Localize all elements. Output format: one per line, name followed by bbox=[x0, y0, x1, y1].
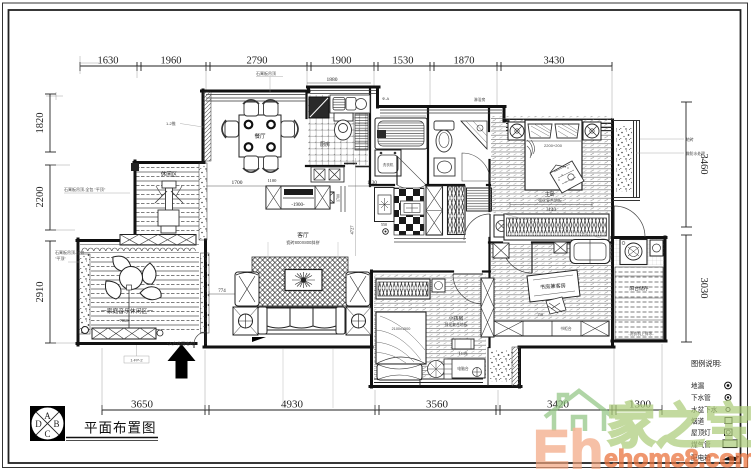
svg-text:休闲区: 休闲区 bbox=[161, 170, 178, 178]
svg-text:1100: 1100 bbox=[268, 178, 278, 183]
svg-text:洗衣机: 洗衣机 bbox=[383, 162, 394, 167]
svg-text:2200: 2200 bbox=[35, 187, 46, 208]
svg-text:3430: 3430 bbox=[544, 56, 565, 67]
svg-text:厨房: 厨房 bbox=[320, 141, 330, 148]
svg-text:4727: 4727 bbox=[350, 225, 355, 235]
svg-text:石膏板吊顶: 石膏板吊顶 bbox=[256, 70, 276, 76]
svg-text:1900: 1900 bbox=[331, 56, 352, 67]
svg-text:1130: 1130 bbox=[367, 181, 377, 186]
svg-text:3030: 3030 bbox=[698, 278, 709, 299]
svg-text:4930: 4930 bbox=[281, 399, 304, 411]
svg-text:瓷砖800X800斜拼: 瓷砖800X800斜拼 bbox=[286, 239, 320, 246]
svg-text:1-2推: 1-2推 bbox=[166, 120, 176, 126]
svg-text:地砖: 地砖 bbox=[686, 137, 694, 142]
svg-text:做防水处理: 做防水处理 bbox=[686, 151, 705, 156]
svg-text:主卧: 主卧 bbox=[544, 190, 556, 198]
svg-text:1119: 1119 bbox=[459, 351, 468, 356]
svg-text:餐厅: 餐厅 bbox=[254, 132, 266, 140]
svg-text:电脑台: 电脑台 bbox=[457, 366, 469, 371]
svg-text:书柜台: 书柜台 bbox=[560, 326, 572, 331]
svg-text:强化复合地板: 强化复合地板 bbox=[445, 322, 468, 327]
svg-text:B: B bbox=[53, 419, 59, 429]
svg-text:774: 774 bbox=[218, 289, 226, 294]
svg-text:图例说明:: 图例说明: bbox=[691, 359, 722, 368]
svg-text:-入户花园地砖-: -入户花园地砖- bbox=[167, 340, 196, 347]
svg-text:阳台储存: 阳台储存 bbox=[629, 285, 648, 292]
svg-text:1870: 1870 bbox=[454, 56, 475, 67]
svg-text:"平顶": "平顶" bbox=[55, 256, 66, 261]
svg-text:3140: 3140 bbox=[546, 208, 557, 213]
svg-text:地漏: 地漏 bbox=[691, 381, 705, 390]
svg-text:550: 550 bbox=[381, 222, 387, 227]
svg-text:小孩房: 小孩房 bbox=[448, 315, 463, 322]
svg-text:2200+200: 2200+200 bbox=[544, 143, 563, 148]
svg-text:ehome8.com: ehome8.com bbox=[604, 445, 751, 470]
svg-text:平面布置图: 平面布置图 bbox=[84, 421, 157, 436]
svg-text:150: 150 bbox=[537, 313, 543, 317]
svg-text:Φ-A: Φ-A bbox=[382, 96, 390, 101]
svg-text:2910: 2910 bbox=[35, 282, 46, 303]
svg-text:1700: 1700 bbox=[336, 194, 341, 202]
svg-text:3650: 3650 bbox=[131, 399, 154, 411]
svg-text:-1900-: -1900- bbox=[291, 203, 305, 208]
svg-text:一家庭音乐休闲区一: 一家庭音乐休闲区一 bbox=[101, 307, 153, 315]
svg-text:C: C bbox=[44, 429, 50, 439]
svg-text:A: A bbox=[44, 411, 51, 421]
svg-text:-洗衣机上排水-: -洗衣机上排水- bbox=[628, 331, 654, 336]
svg-text:Eh: Eh bbox=[533, 418, 603, 470]
svg-text:2790: 2790 bbox=[247, 56, 268, 67]
svg-text:D: D bbox=[35, 419, 42, 429]
svg-text:2100x1500: 2100x1500 bbox=[392, 327, 411, 331]
svg-text:3560: 3560 bbox=[426, 399, 449, 411]
svg-text:石膏板吊顶-全包 "平顶": 石膏板吊顶-全包 "平顶" bbox=[64, 186, 106, 192]
svg-text:1960: 1960 bbox=[161, 56, 182, 67]
svg-text:1820: 1820 bbox=[35, 113, 46, 134]
svg-text:1880: 1880 bbox=[327, 77, 338, 83]
svg-text:-7060-: -7060- bbox=[118, 318, 130, 323]
svg-text:淋浴房: 淋浴房 bbox=[474, 97, 486, 102]
svg-text:客厅: 客厅 bbox=[297, 231, 309, 239]
svg-text:石膏板吊顶-全包: 石膏板吊顶-全包 bbox=[55, 249, 84, 255]
svg-text:1530: 1530 bbox=[393, 56, 414, 67]
svg-text:1-FP-2: 1-FP-2 bbox=[130, 358, 143, 363]
svg-text:1630: 1630 bbox=[98, 56, 119, 67]
svg-text:强化复合地板: 强化复合地板 bbox=[538, 197, 562, 203]
svg-text:3460: 3460 bbox=[698, 154, 709, 175]
svg-text:1700: 1700 bbox=[232, 180, 243, 186]
